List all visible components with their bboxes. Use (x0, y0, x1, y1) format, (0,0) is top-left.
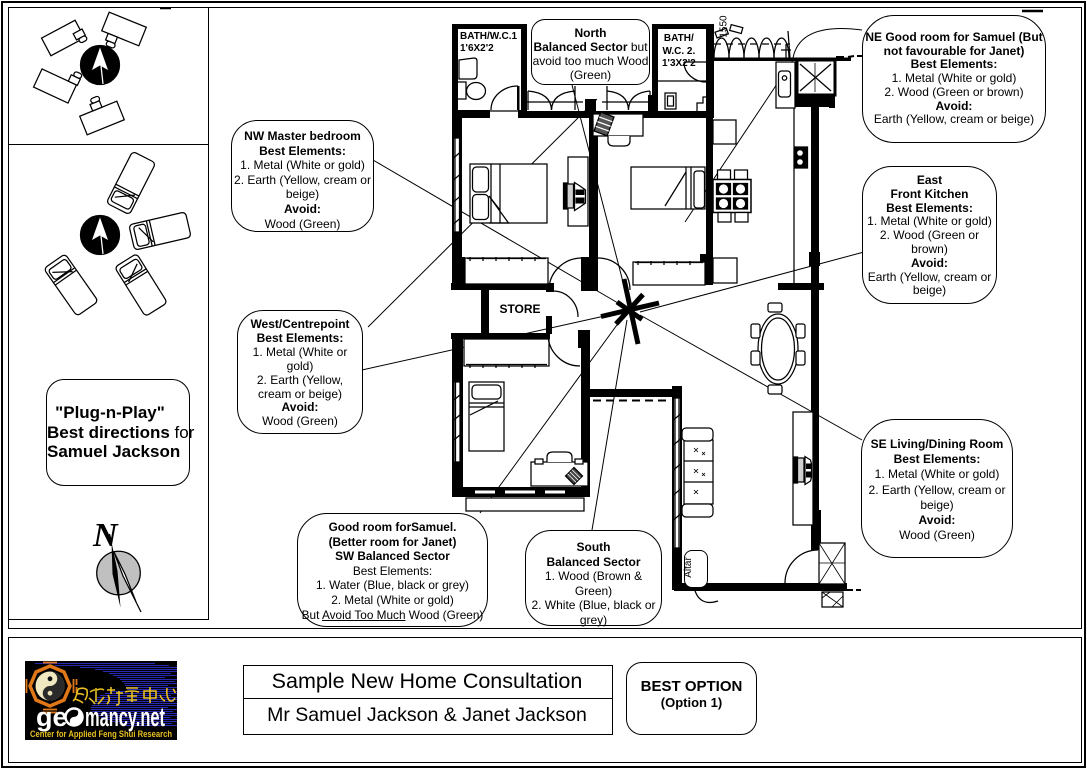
svg-text:ge: ge (36, 702, 68, 732)
svg-text:N: N (92, 517, 119, 554)
svg-text:mancy.net: mancy.net (85, 702, 165, 732)
svg-text:Center for Applied Feng Shui R: Center for Applied Feng Shui Research (30, 729, 172, 739)
